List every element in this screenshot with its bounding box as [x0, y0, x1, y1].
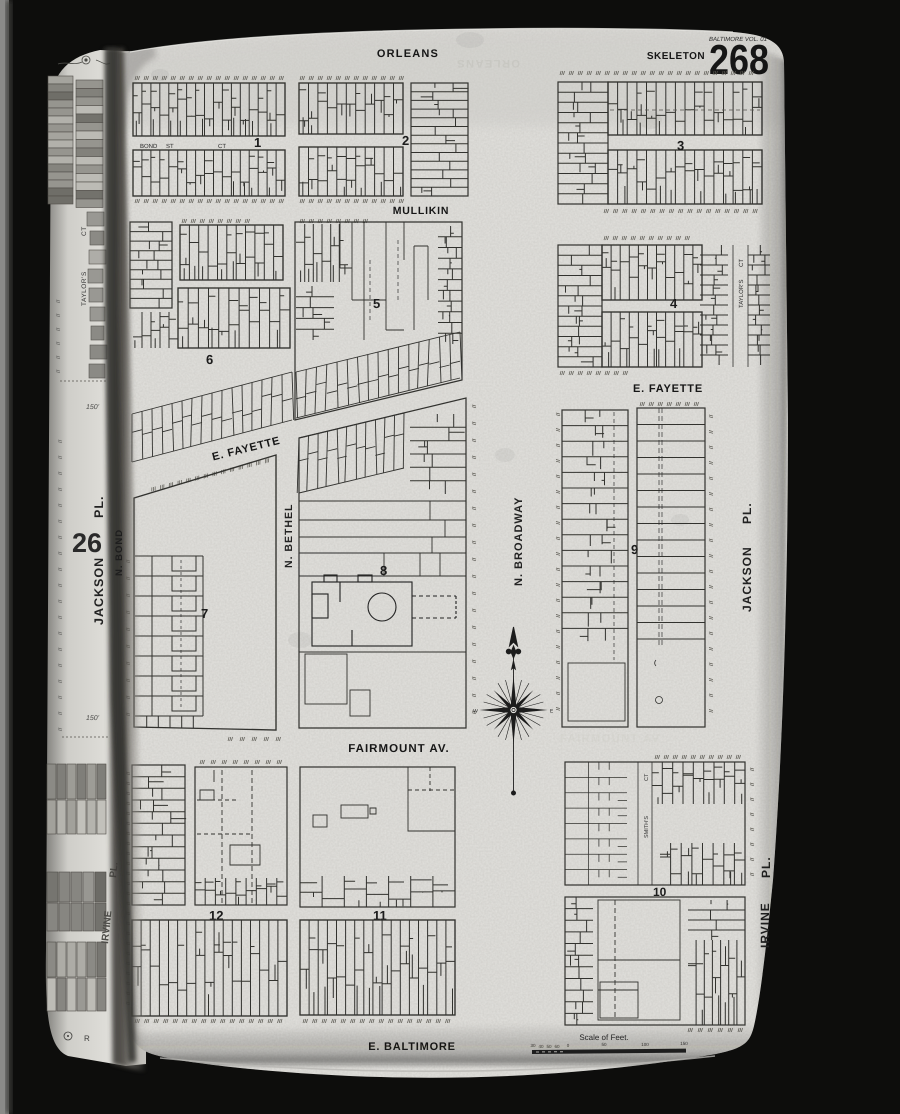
svg-text:SKELETON: SKELETON [647, 51, 705, 62]
svg-text:CT: CT [738, 259, 745, 267]
svg-text:JACKSON: JACKSON [92, 557, 106, 625]
svg-text:TAYLOR’S: TAYLOR’S [81, 271, 88, 306]
svg-text:CT: CT [644, 773, 650, 781]
svg-text:5: 5 [373, 296, 380, 311]
svg-text:2: 2 [402, 133, 409, 148]
svg-text:BOND: BOND [140, 143, 158, 150]
svg-text:TAYLOR’S: TAYLOR’S [738, 280, 745, 308]
svg-text:N. BETHEL: N. BETHEL [283, 504, 295, 568]
svg-text:FAIRMOUNT AV.: FAIRMOUNT AV. [348, 743, 449, 755]
svg-text:12: 12 [209, 908, 223, 923]
svg-text:ST: ST [166, 143, 174, 150]
svg-text:CT: CT [81, 226, 88, 236]
svg-text:PL.: PL. [92, 496, 106, 518]
svg-text:MULLIKIN: MULLIKIN [393, 205, 450, 217]
svg-text:W: W [473, 709, 478, 715]
svg-text:R: R [84, 1034, 90, 1043]
svg-text:PL.: PL. [740, 502, 754, 524]
svg-text:7: 7 [201, 606, 208, 621]
svg-text:3: 3 [677, 138, 684, 153]
svg-text:N. BOND: N. BOND [114, 529, 125, 576]
svg-text:SMITH’S: SMITH’S [644, 816, 650, 838]
svg-text:1: 1 [254, 135, 261, 150]
svg-text:E. FAYETTE: E. FAYETTE [633, 383, 703, 395]
svg-text:ORLEANS: ORLEANS [456, 57, 520, 69]
svg-text:6: 6 [206, 352, 213, 367]
svg-text:150’: 150’ [86, 715, 100, 722]
svg-text:8: 8 [380, 563, 387, 578]
svg-text:150’: 150’ [86, 404, 100, 411]
svg-text:N. BROADWAY: N. BROADWAY [513, 497, 525, 586]
svg-text:FAIRMOUNT AV: FAIRMOUNT AV [560, 733, 661, 745]
svg-text:ORLEANS: ORLEANS [377, 48, 439, 60]
svg-text:4: 4 [670, 296, 678, 311]
svg-text:JACKSON: JACKSON [740, 546, 754, 612]
svg-text:26: 26 [72, 528, 102, 558]
svg-text:CT: CT [218, 143, 226, 150]
svg-text:11: 11 [373, 908, 387, 923]
